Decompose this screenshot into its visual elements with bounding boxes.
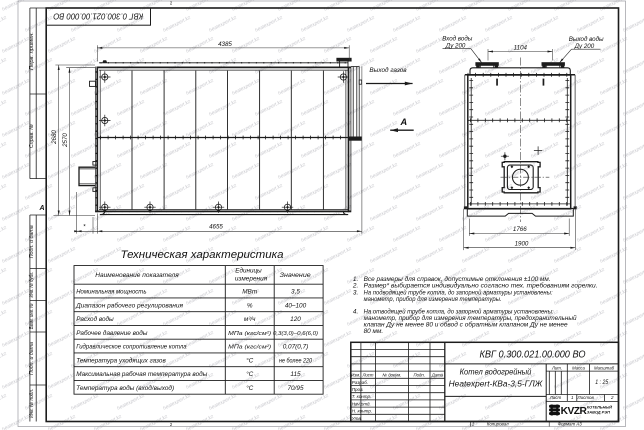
svg-text:№ докум.: № докум.	[382, 373, 401, 378]
svg-text:не более 220: не более 220	[279, 356, 312, 364]
svg-text:Температура воды (вход/выход): Температура воды (вход/выход)	[76, 384, 174, 392]
svg-text:клапан Ду не менее 80 и обвод: клапан Ду не менее 80 и обвод с обратным…	[364, 320, 568, 328]
svg-text:Лист: Лист	[361, 373, 373, 378]
svg-text:1: 1	[472, 421, 474, 426]
svg-text:Формат А3: Формат А3	[558, 422, 583, 427]
svg-text:Наименование показателя: Наименование показателя	[95, 272, 179, 279]
svg-text:0,07(0,7): 0,07(0,7)	[283, 344, 309, 351]
svg-text:Максимальная рабочая температу: Максимальная рабочая температура воды	[76, 370, 207, 378]
svg-text:40–100: 40–100	[285, 302, 307, 309]
svg-text:Размер* выбирается индивидуаль: Размер* выбирается индивидуально согласн…	[364, 281, 598, 289]
svg-text:2: 2	[610, 395, 614, 400]
svg-text:Масштаб: Масштаб	[594, 365, 615, 370]
svg-text:МВт: МВт	[242, 289, 258, 296]
svg-text:Инв. № подл.: Инв. № подл.	[29, 389, 35, 418]
svg-text:Листов: Листов	[577, 395, 595, 400]
svg-text:манометр, прибор для измерения: манометр, прибор для измерения температу…	[364, 295, 502, 303]
svg-text:Выход воды: Выход воды	[569, 36, 604, 43]
svg-text:Номинальная мощность: Номинальная мощность	[76, 289, 146, 296]
svg-text:Подп.: Подп.	[413, 373, 424, 378]
svg-text:Котел водогрейный: Котел водогрейный	[460, 367, 532, 376]
svg-text:Гидравлическое сопротивление к: Гидравлическое сопротивление котла	[76, 343, 187, 351]
svg-text:Разраб.: Разраб.	[352, 380, 368, 385]
svg-text:Дата: Дата	[431, 373, 444, 378]
svg-text:Расход воды: Расход воды	[76, 315, 114, 323]
svg-text:КВГ 0.300.021.00.000 ВО: КВГ 0.300.021.00.000 ВО	[53, 11, 143, 21]
svg-text:Техническая характеристика: Техническая характеристика	[121, 249, 284, 261]
svg-text:А: А	[38, 205, 44, 212]
svg-text:Подп. и дата: Подп. и дата	[29, 342, 35, 375]
svg-text:%: %	[247, 302, 253, 309]
svg-text:измерения: измерения	[235, 276, 268, 283]
svg-text:Рабочее давление воды: Рабочее давление воды	[76, 329, 148, 337]
svg-text:Перв. примен.: Перв. примен.	[29, 32, 35, 70]
svg-text:Изм.: Изм.	[351, 373, 360, 378]
svg-text:°С: °С	[246, 384, 254, 392]
svg-text:0,3(3,0)–0,6(6,0): 0,3(3,0)–0,6(6,0)	[273, 331, 318, 337]
svg-text:А: А	[399, 117, 407, 127]
svg-text:Выход газов: Выход газов	[369, 66, 407, 74]
svg-text:Н. контр.: Н. контр.	[352, 409, 372, 414]
svg-text:МПа (кгс/см²): МПа (кгс/см²)	[228, 345, 271, 351]
svg-text:1900: 1900	[515, 240, 529, 247]
svg-text:115: 115	[290, 371, 301, 378]
svg-text:МПа (кгс/см²): МПа (кгс/см²)	[228, 331, 271, 337]
svg-text:2680: 2680	[51, 130, 58, 145]
svg-text:80 мм.: 80 мм.	[364, 328, 384, 335]
svg-text:4.: 4.	[353, 308, 358, 315]
svg-text:3.: 3.	[353, 289, 358, 296]
svg-text:Температура уходящих газов: Температура уходящих газов	[76, 356, 166, 364]
svg-text:4385: 4385	[218, 41, 232, 48]
svg-text:КВГ 0.300.021.00.000 ВО: КВГ 0.300.021.00.000 ВО	[480, 350, 586, 361]
svg-text:м³/ч: м³/ч	[244, 316, 256, 323]
svg-text:Лит.: Лит.	[551, 365, 562, 370]
svg-text:Подп. и дата: Подп. и дата	[29, 225, 35, 258]
svg-text:3,5: 3,5	[291, 289, 300, 296]
svg-text:Heatexpert-КВа-3,5-ГЛЖ: Heatexpert-КВа-3,5-ГЛЖ	[449, 380, 543, 389]
svg-text:Нач.отд.: Нач.отд.	[352, 401, 371, 406]
svg-text:Взам. инв. №: Взам. инв. №	[29, 303, 35, 329]
svg-text:Единицы: Единицы	[235, 267, 262, 275]
svg-text:Значение: Значение	[280, 272, 311, 279]
svg-text:1104: 1104	[514, 44, 528, 51]
svg-text:Лист: Лист	[549, 395, 562, 400]
svg-text:Масса: Масса	[572, 365, 585, 370]
svg-text:70/95: 70/95	[288, 385, 304, 392]
svg-text:ЗАВОД РЭП: ЗАВОД РЭП	[587, 410, 610, 415]
svg-text:Справ. №: Справ. №	[29, 124, 35, 148]
svg-text:°С: °С	[246, 356, 254, 364]
svg-text:Копировал: Копировал	[487, 422, 509, 427]
svg-text:Диапазон рабочего регулировани: Диапазон рабочего регулирования	[75, 301, 183, 309]
svg-text:2.: 2.	[352, 282, 358, 289]
svg-text:120: 120	[290, 316, 301, 323]
svg-text:Инв. № дубл.: Инв. № дубл.	[29, 272, 35, 298]
svg-text:Утв.: Утв.	[352, 416, 362, 421]
svg-text:°С: °С	[246, 370, 254, 378]
svg-text:4655: 4655	[209, 224, 223, 231]
svg-text:Т. контр.: Т. контр.	[352, 394, 371, 399]
svg-text:KVZR: KVZR	[561, 406, 588, 417]
svg-text:1 : 25: 1 : 25	[595, 380, 609, 386]
svg-text:2570: 2570	[62, 133, 69, 148]
svg-text:Вход воды: Вход воды	[442, 35, 472, 42]
svg-text:Пров.: Пров.	[352, 387, 364, 392]
svg-text:1766: 1766	[513, 226, 527, 233]
